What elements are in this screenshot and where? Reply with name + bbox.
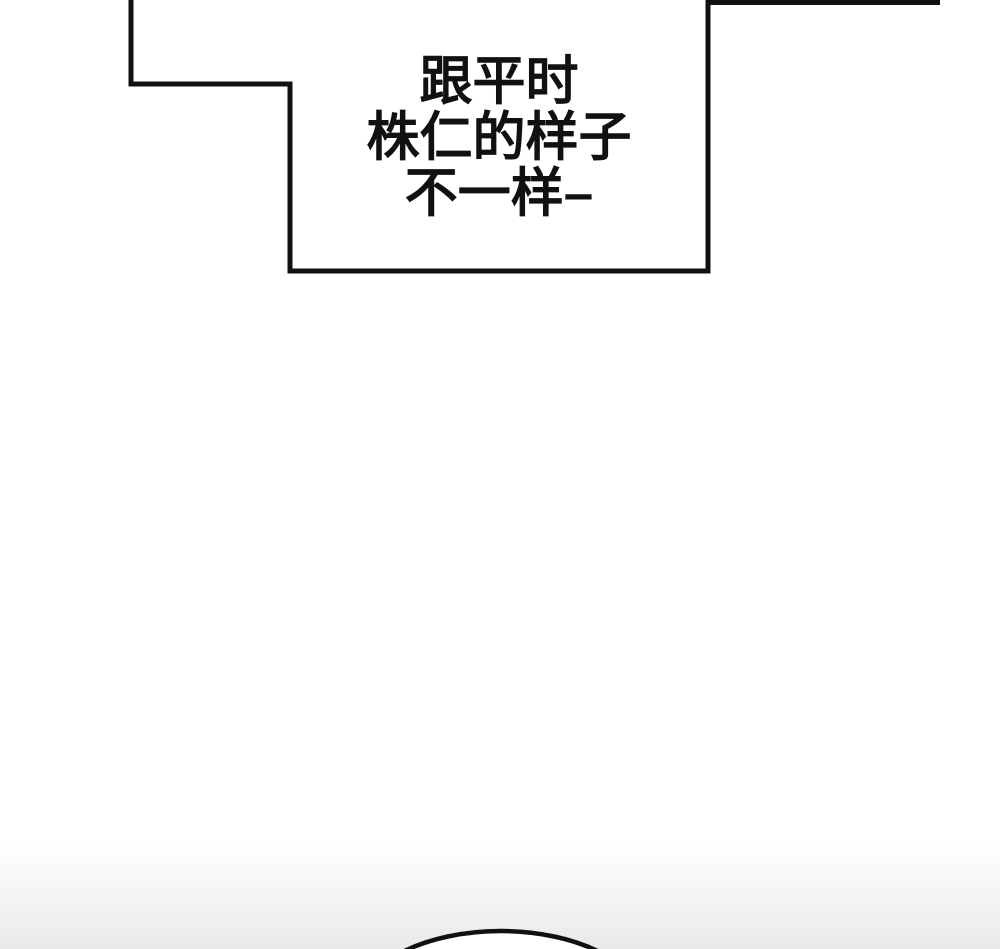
bottom-speech-bubble-arc <box>355 931 647 949</box>
speech-line-3: 不一样– <box>248 166 750 222</box>
comic-panel: 跟平时 株仁的样子 不一样– <box>0 0 1000 949</box>
speech-line-2: 株仁的样子 <box>248 110 750 166</box>
speech-bubble-text: 跟平时 株仁的样子 不一样– <box>248 54 750 222</box>
speech-line-1: 跟平时 <box>248 54 750 110</box>
